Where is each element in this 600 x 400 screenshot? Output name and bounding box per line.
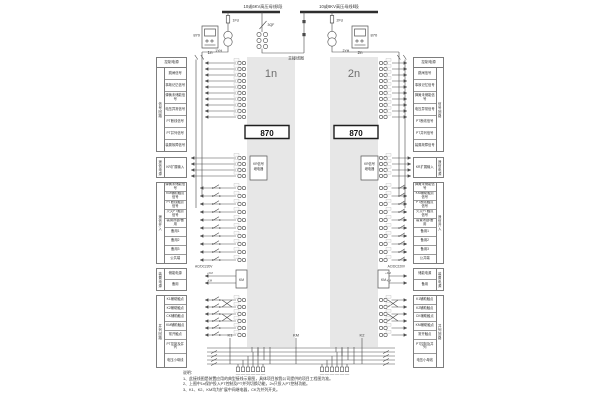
signal-table-header: 控制电源 — [414, 58, 443, 68]
fuse-1fu-label: 1FU — [233, 19, 240, 23]
bus-tie-branch — [257, 12, 306, 53]
schematic-page: 10或6KV高压母线Ⅰ段 10或6KV高压母线Ⅱ段 1FU 3QF 2FU 87… — [0, 0, 600, 400]
parallel-row: K2辅助触点 — [414, 305, 436, 314]
badge-870-right-label: 870 — [349, 129, 363, 138]
parallel-row: 电压小母线 — [414, 354, 436, 367]
km-plus-label-right: +KM — [385, 271, 391, 275]
signal-row: PT并列信号 — [414, 128, 436, 140]
left-wiring — [191, 61, 236, 336]
telemetry-row: 备用3 — [414, 246, 436, 255]
panel-2n-title: 2n — [348, 68, 360, 80]
telemetry-row: 弹簧未储能信号 — [414, 183, 436, 192]
ac-label-right: AC/DC220V — [388, 265, 406, 269]
note-item: 3、K1、K2、KM均为扩展中间继电器，CK为并列开关。 — [183, 387, 448, 393]
kr-row: KR扩展输入 — [414, 158, 436, 177]
kr-side-label: 遥信电源 — [157, 158, 165, 177]
kr-side-label: 遥信电源 — [436, 158, 444, 177]
parallel-row: PT控制及并列 — [414, 340, 436, 354]
parallel-row: KM辅助触点 — [414, 322, 436, 331]
telemetry-row: 装置闭锁/备用 — [165, 219, 187, 228]
changeover-cross-icon — [222, 300, 232, 321]
breaker-3QF-icon — [260, 12, 267, 32]
right-telemetry-table: 遥信开入 弹簧未储能信号 KM辅助触点信号 PT断线触点信号 火灾PT触点信号 … — [413, 182, 444, 264]
ac-label-left: AC/DC220V — [195, 265, 213, 269]
right-kr-table: 遥信电源 KR扩展输入 — [413, 157, 444, 178]
badge-870-left-label: 870 — [260, 129, 274, 138]
power-side-label: 装置电源 — [157, 269, 165, 290]
protection-panels — [247, 57, 378, 347]
parallel-row: 常开触点 — [165, 331, 187, 340]
unit-1n-label: 1n — [207, 50, 213, 55]
device-870-right-label: 870 — [371, 33, 378, 38]
power-row: 储能电源 — [414, 269, 436, 280]
relay-k2-label: K2 — [360, 333, 366, 338]
right-power-table: 装置电源 储能电源 备用 — [413, 268, 444, 291]
bus-left-label: 10或6KV高压母线Ⅰ段 — [244, 3, 284, 10]
parallel-row: K1辅助触点 — [414, 296, 436, 305]
telemetry-row: 火灾PT触点信号 — [165, 210, 187, 219]
pt-1yh-label: 1YH — [215, 49, 222, 53]
telemetry-row: 装置闭锁/备用 — [414, 219, 436, 228]
telemetry-row: 弹簧未储能信号 — [165, 183, 187, 192]
ck-contact-icon — [211, 351, 217, 366]
parallel-row: KM辅助触点 — [165, 322, 187, 331]
km-minus-label-left: -KM — [207, 278, 213, 282]
telemetry-row: 公共端 — [414, 255, 436, 263]
signal-row: 事故记忆信号 — [414, 80, 436, 92]
parallel-row: CK辅助触点 — [165, 313, 187, 322]
power-row: 备用 — [165, 280, 187, 290]
relay-km-label: KM — [293, 333, 299, 338]
parallel-side-label: 并列回路 — [157, 296, 165, 367]
signal-row: PT断线信号 — [414, 116, 436, 128]
left-pt-branch — [195, 12, 232, 208]
power-side-label: 装置电源 — [436, 269, 444, 290]
relay-k1-label: K1 — [228, 333, 234, 338]
device-870-left-label: 870 — [193, 33, 200, 38]
telemetry-row: 火灾PT触点信号 — [414, 210, 436, 219]
parallel-row: K1辅助触点 — [165, 296, 187, 305]
power-row: 储能电源 — [165, 269, 187, 280]
telemetry-row: 备用3 — [165, 246, 187, 255]
notes-block: 说明： 1、此接线图是装置应用的典型接线示意图，具体项目按我公司提供的项目工程图… — [183, 370, 448, 393]
kr-box-right-line2: 继电器 — [365, 166, 375, 171]
telemetry-row: KM辅助触点信号 — [165, 192, 187, 201]
panel-1n-title: 1n — [265, 68, 277, 80]
signal-table-header: 控制电源 — [157, 58, 186, 68]
parallel-row: PT控制及并列 — [165, 340, 187, 354]
fuse-1FU-icon — [226, 16, 229, 24]
telemetry-row: 备用2 — [165, 237, 187, 246]
parallel-row: CK辅助触点 — [414, 313, 436, 322]
right-wiring — [388, 61, 411, 336]
mini-fuse-icon — [195, 55, 204, 60]
signal-row: 电压异常信号 — [165, 104, 187, 116]
left-signal-table: 控制电源 信号回路 跳闸信号 事故记忆信号 弹簧未储能信号 电压异常信号 PT断… — [156, 57, 187, 152]
telemetry-row: 备用2 — [414, 237, 436, 246]
left-power-table: 装置电源 储能电源 备用 — [156, 268, 187, 291]
telemetry-row: PT断线触点信号 — [165, 201, 187, 210]
fuse-2FU-icon — [330, 16, 333, 24]
unit-2n-label: 2n — [357, 50, 363, 55]
telemetry-row: 备用1 — [414, 228, 436, 237]
signal-row: 电压异常信号 — [414, 104, 436, 116]
bus-right-label: 10或6KV高压母线Ⅱ段 — [319, 3, 360, 10]
parallel-side-label: 并列回路 — [436, 296, 444, 367]
right-parallel-table: 并列回路 K1辅助触点 K2辅助触点 CK辅助触点 KM辅助触点 常开触点 PT… — [413, 295, 444, 368]
signal-row: 跳闸信号 — [414, 68, 436, 80]
panel-2n — [330, 57, 378, 347]
signal-row: 装置故障信号 — [414, 140, 436, 151]
ck-contact-icon — [383, 351, 389, 366]
telemetry-row: 公共端 — [165, 255, 187, 263]
km-minus-label-right: -KM — [386, 278, 392, 282]
km-box-left-label: KM — [239, 278, 244, 282]
signal-side-label: 信号回路 — [436, 68, 444, 151]
parallel-row: 电压小母线 — [165, 354, 187, 367]
km-plus-label-left: +KM — [207, 271, 213, 275]
telemetry-row: 备用1 — [165, 228, 187, 237]
kr-box-left-line2: 继电器 — [254, 166, 264, 171]
signal-row: 弹簧未储能信号 — [165, 92, 187, 104]
panel-1n — [247, 57, 295, 347]
kr-row: KR扩展输入 — [165, 158, 187, 177]
right-signal-table: 控制电源 信号回路 跳闸信号 事故记忆信号 弹簧未储能信号 电压异常信号 PT断… — [413, 57, 444, 152]
pt-winding-icon — [328, 38, 336, 46]
power-row: 备用 — [414, 280, 436, 290]
signal-row: 跳闸信号 — [165, 68, 187, 80]
breaker-3qf-label: 3QF — [268, 23, 275, 27]
parallel-row: K2辅助触点 — [165, 305, 187, 314]
left-telemetry-table: 遥信开入 弹簧未储能信号 KM辅助触点信号 PT断线触点信号 火灾PT触点信号 … — [156, 182, 187, 264]
signal-row: 装置故障信号 — [165, 140, 187, 151]
telemetry-row: PT断线触点信号 — [414, 201, 436, 210]
pt-2yh-label: 2YH — [343, 49, 350, 53]
pt-winding-icon — [224, 38, 232, 46]
signal-row: PT并列信号 — [165, 128, 187, 140]
kr-box-left-line1: KR信号 — [253, 161, 264, 166]
main-wiring-label: 主接线图 — [288, 55, 304, 61]
kr-box-right-line1: KR信号 — [364, 161, 375, 166]
left-kr-table: 遥信电源 KR扩展输入 — [156, 157, 187, 178]
signal-row: 弹簧未储能信号 — [414, 92, 436, 104]
signal-row: 事故记忆信号 — [165, 80, 187, 92]
left-parallel-table: 并列回路 K1辅助触点 K2辅助触点 CK辅助触点 KM辅助触点 常开触点 PT… — [156, 295, 187, 368]
signal-row: PT断线信号 — [165, 116, 187, 128]
schematic-canvas: 10或6KV高压母线Ⅰ段 10或6KV高压母线Ⅱ段 1FU 3QF 2FU 87… — [0, 0, 600, 400]
mini-fuse-icon — [397, 55, 406, 60]
fuse-2fu-label: 2FU — [337, 19, 344, 23]
signal-side-label: 信号回路 — [157, 68, 165, 151]
parallel-row: 常开触点 — [414, 331, 436, 340]
telemetry-side-label: 遥信开入 — [157, 183, 165, 263]
telemetry-row: KM辅助触点信号 — [414, 192, 436, 201]
telemetry-side-label: 遥信开入 — [436, 183, 444, 263]
